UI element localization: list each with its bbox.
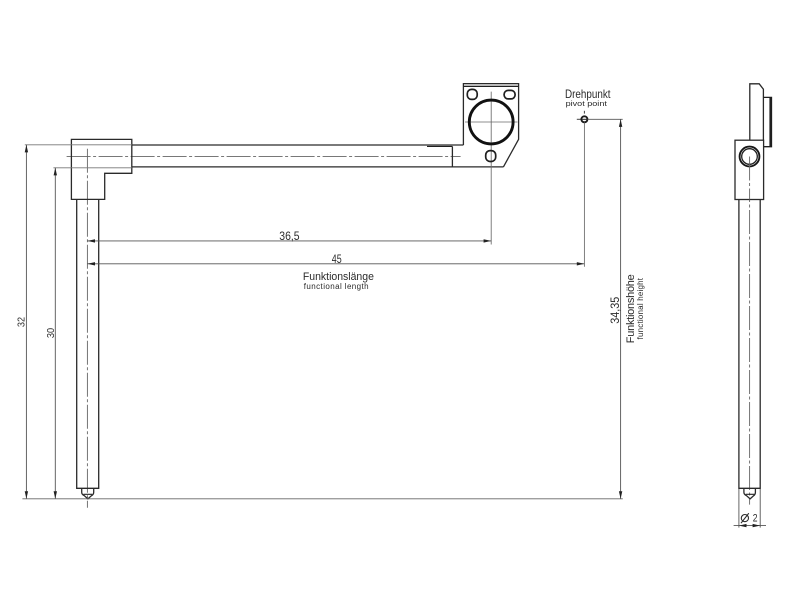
svg-text:2: 2: [753, 513, 758, 525]
svg-text:pivot point: pivot point: [566, 99, 608, 108]
svg-text:functional length: functional length: [304, 282, 369, 291]
svg-text:34,35: 34,35: [610, 297, 622, 324]
svg-text:45: 45: [332, 254, 342, 266]
svg-text:36,5: 36,5: [279, 229, 300, 243]
svg-text:30: 30: [45, 328, 57, 338]
svg-text:functional height: functional height: [636, 277, 645, 339]
svg-text:32: 32: [16, 317, 28, 327]
